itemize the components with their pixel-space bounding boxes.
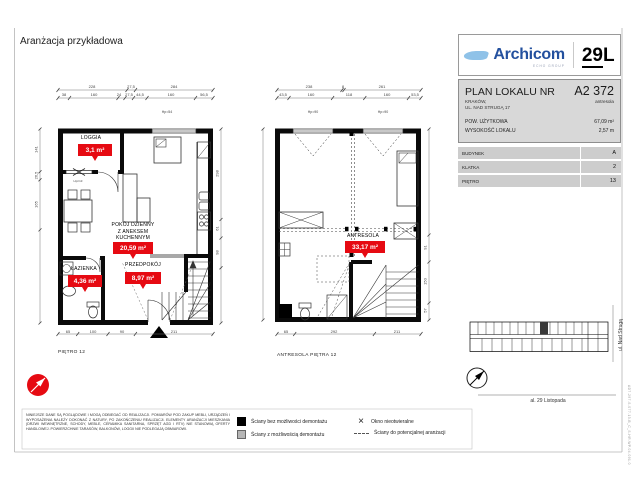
dim-label: 284: [167, 84, 181, 89]
archicom-logo: Archicom: [493, 46, 564, 64]
legend-item-wall-fixed: Ściany bez możliwości demontażu: [237, 417, 327, 426]
dim-label: 43,5: [278, 92, 288, 97]
dim-label: 27,5: [124, 92, 134, 97]
dim-label: 150: [423, 275, 428, 289]
dim-label: 100: [86, 329, 100, 334]
room-label-antresola: ANTRESOLA: [333, 233, 393, 239]
dim-label: 160: [306, 92, 316, 97]
area-label-hall: 8,97 m²: [125, 272, 161, 284]
table-row: PIĘTRO 13: [458, 175, 621, 187]
fixed-wall-swatch: [237, 417, 246, 426]
archicom-swoosh-icon: [463, 51, 490, 60]
dim-label: 24: [114, 92, 124, 97]
dim-label: 160: [382, 92, 392, 97]
key-plan: [470, 305, 616, 395]
north-arrow: [467, 368, 487, 388]
dim-label: 292: [327, 329, 341, 334]
key-plan-highlighted-unit: [540, 322, 548, 335]
dim-label: 211: [390, 329, 404, 334]
dim-label: 165: [34, 198, 39, 212]
unit-sub: antresola: [595, 99, 614, 104]
dim-label: 98: [215, 246, 220, 260]
dim-label: 211: [167, 329, 181, 334]
sheet-note: Aranżacja przykładowa: [20, 36, 123, 47]
plan-sheet: Aranżacja przykładowa LOGGIA 3,1 m² POKÓ…: [0, 0, 640, 480]
area-label-bath: 4,36 m²: [68, 275, 102, 287]
project-29l-logo: 29L: [582, 46, 615, 65]
table-row: KLATKA 2: [458, 161, 621, 173]
dim-label: 261: [375, 84, 389, 89]
area-label-loggia: 3,1 m²: [78, 144, 112, 156]
building-info-table: BUDYNEK A KLATKA 2 PIĘTRO 13: [458, 147, 621, 189]
dim-label: 298: [215, 167, 220, 181]
window-label-mezz-1: Hp=90: [301, 110, 325, 114]
area-row-value: 67,09 m²: [594, 119, 614, 125]
dim-label: 8: [336, 84, 350, 89]
dim-label: 44,5: [135, 92, 145, 97]
mezz-stairs: [353, 265, 419, 318]
legend-item-window-fixed: × Okno nieotwieralne: [356, 417, 414, 426]
dim-label: 53,5: [410, 92, 420, 97]
room-label-living-2: Z ANEKSEM: [98, 229, 168, 235]
dim-label: 141: [34, 143, 39, 157]
height-row-value: 2,57 m: [599, 128, 614, 134]
dim-label: 56,5: [199, 92, 209, 97]
entrance-arrow: [150, 326, 168, 338]
dim-label: 27,5: [124, 84, 138, 89]
unit-number: A2 372: [574, 84, 614, 98]
dim-label: 160: [89, 92, 99, 97]
dim-label: 65: [279, 329, 293, 334]
mezz-caption: ANTRESOLA PIĘTRA 12: [277, 353, 337, 358]
dim-label: 238: [302, 84, 316, 89]
room-label-hall: PRZEDPOKÓJ: [113, 262, 173, 268]
room-label-living-1: POKÓJ DZIENNY: [98, 222, 168, 228]
unit-street: UL. NAD STRUGĄ 17: [465, 105, 614, 110]
dim-label: 61: [215, 222, 220, 236]
dim-label: 160: [166, 92, 176, 97]
dim-label: 26,5: [34, 169, 39, 183]
dim-label: 228: [85, 84, 99, 89]
area-label-antresola: 33,17 m²: [345, 241, 385, 253]
table-row: BUDYNEK A: [458, 147, 621, 159]
legend-item-wall-removable: Ściany z możliwością demontażu: [237, 430, 324, 439]
disclaimer-text: NINIEJSZE DANE SĄ POGLĄDOWE I MOGĄ ODBIE…: [26, 413, 230, 431]
mezz-dashed-walls: [279, 134, 416, 316]
area-label-living: 20,59 m²: [113, 242, 153, 254]
removable-wall-swatch: [237, 430, 246, 439]
brand-header: Archicom ECHO GROUP 29L: [458, 34, 621, 76]
dim-label: 90: [115, 329, 129, 334]
area-row-label: POW. UŻYTKOWA: [465, 119, 508, 125]
window-label-mezz-2: Hp=90: [371, 110, 395, 114]
unit-header: PLAN LOKALU NR A2 372 KRAKÓW, antresola …: [458, 79, 621, 143]
floor-caption: PIĘTRO 12: [58, 350, 85, 355]
archicom-logo-subtext: ECHO GROUP: [533, 64, 565, 68]
room-label-living-3: KUCHENNYM: [98, 235, 168, 241]
room-label-bath: ŁAZIENKA: [54, 266, 114, 272]
dashed-wall-swatch: [354, 433, 369, 434]
window-label-top: Hp=54: [155, 110, 179, 114]
dim-label: 65: [61, 329, 75, 334]
plan-title: PLAN LOKALU NR: [465, 86, 555, 98]
dim-label: 57: [423, 304, 428, 318]
red-north-marker: [27, 374, 49, 396]
dim-label: 91: [423, 241, 428, 255]
dim-label: 38: [59, 92, 69, 97]
non-opening-window-icon: ×: [356, 417, 366, 426]
bottom-street-label: al. 29 Listopada: [480, 398, 616, 404]
mezz-wall-block: [279, 304, 292, 318]
edge-small-print: AD7.297.S.077.13.B_C_S.HR.WP.04.091.0: [627, 385, 631, 460]
height-row-label: WYSOKOŚĆ LOKALU: [465, 128, 516, 134]
side-street-label: ul. Nad Strugą: [618, 305, 624, 365]
legend-item-wall-optional: Ściany do potencjalnej aranżacji: [354, 430, 445, 436]
dim-label: 118: [344, 92, 354, 97]
logo-divider: [573, 42, 574, 68]
window-label-loggia: Hp=13: [68, 179, 88, 183]
unit-city: KRAKÓW,: [465, 99, 486, 104]
room-label-loggia: LOGGIA: [61, 135, 121, 141]
